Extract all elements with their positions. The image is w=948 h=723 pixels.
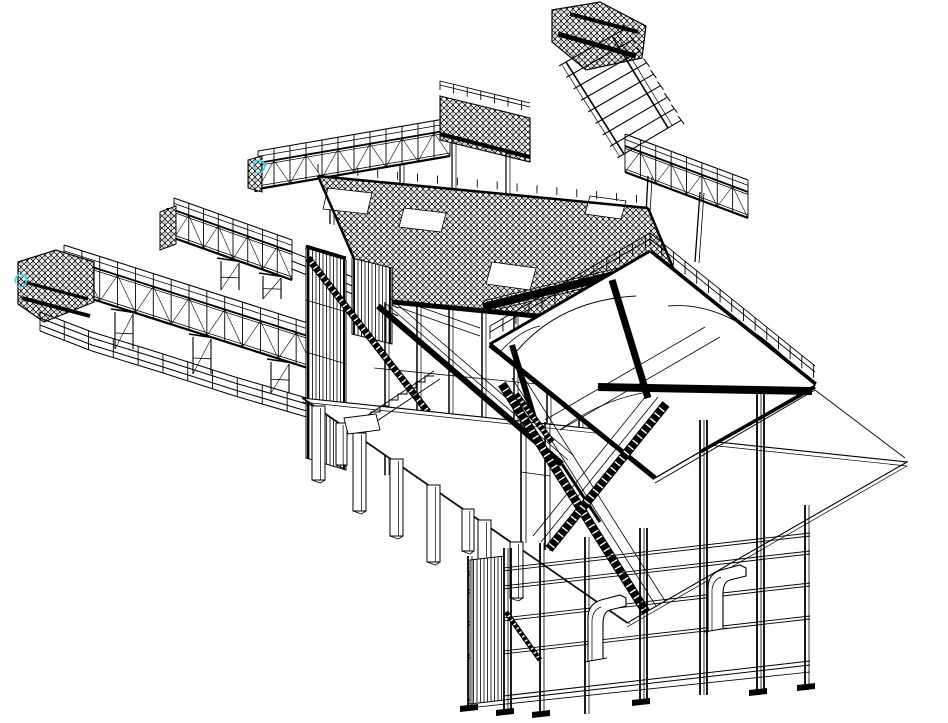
cad-wireframe-drawing — [0, 0, 948, 723]
poly — [160, 206, 176, 250]
bent — [111, 309, 137, 349]
lbcol — [540, 543, 544, 712]
bp — [496, 708, 514, 716]
bp — [460, 704, 478, 712]
ml — [468, 616, 810, 658]
line — [695, 192, 700, 262]
conveyor-gallery-upper-left — [174, 198, 292, 280]
ml — [468, 661, 810, 704]
pile — [336, 423, 347, 468]
lbcol — [805, 505, 809, 685]
pile — [478, 520, 491, 563]
pile — [427, 485, 440, 565]
bp — [797, 683, 815, 691]
conveyor-gallery-right — [625, 134, 748, 218]
bent — [189, 334, 215, 374]
conveyor-gallery-left — [64, 245, 314, 370]
pile — [390, 459, 403, 539]
pile — [353, 433, 366, 514]
drawing-viewport — [0, 0, 948, 723]
ground-floor-lattice — [470, 556, 504, 704]
bp — [749, 688, 767, 696]
line — [815, 390, 905, 458]
bp — [632, 698, 650, 706]
transfer-tower — [352, 258, 392, 344]
deck-opening — [323, 188, 372, 214]
bent — [259, 273, 285, 299]
pile — [510, 542, 523, 601]
bent — [217, 258, 243, 290]
enclosure-front-beam — [598, 387, 812, 391]
pile — [312, 406, 325, 483]
stair-landing — [344, 414, 380, 434]
bp — [532, 710, 550, 718]
discharge-chute — [584, 595, 626, 662]
pile — [462, 509, 474, 554]
drive-station-left — [18, 250, 94, 322]
